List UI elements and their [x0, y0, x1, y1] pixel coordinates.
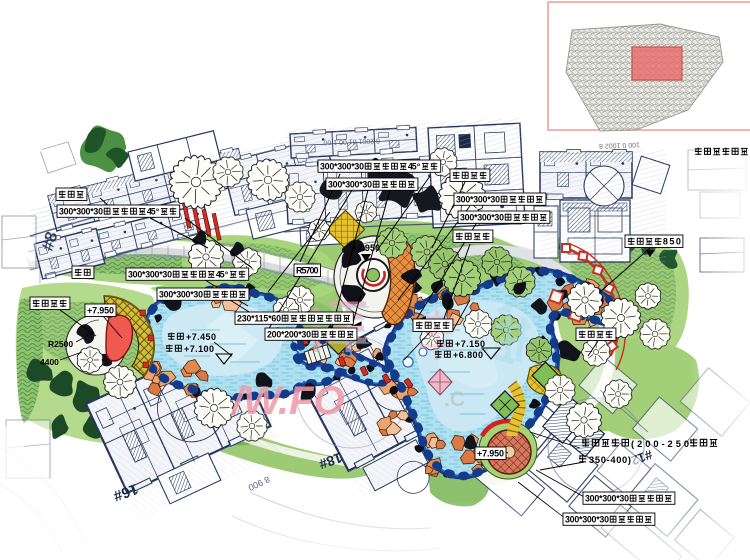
svg-text:R2500: R2500 — [48, 339, 73, 349]
svg-text:4400: 4400 — [40, 357, 59, 367]
svg-text:R5700: R5700 — [296, 266, 319, 276]
svg-text:+7.950: +7.950 — [477, 449, 504, 459]
svg-text:°: ° — [225, 269, 229, 279]
svg-text:300*300*30: 300*300*30 — [159, 289, 203, 299]
svg-text:300*300*30: 300*300*30 — [328, 179, 372, 189]
svg-text:/W.FO: /W.FO — [230, 379, 345, 423]
svg-text:+6.800: +6.800 — [453, 350, 483, 360]
svg-text:300*300*30: 300*300*30 — [320, 161, 364, 171]
svg-text:°: ° — [156, 206, 160, 216]
svg-text:300*300*30: 300*300*30 — [59, 206, 103, 216]
svg-text:.C: .C — [444, 388, 465, 411]
svg-text:200*200*30: 200*200*30 — [267, 329, 311, 339]
svg-text:45: 45 — [408, 161, 417, 171]
svg-text:300*300*30: 300*300*30 — [456, 194, 500, 204]
svg-text:300*300*30: 300*300*30 — [585, 493, 629, 503]
svg-text:+7.150: +7.150 — [455, 339, 485, 349]
svg-text:+7.100: +7.100 — [184, 344, 214, 354]
svg-text:100 0 1002 8: 100 0 1002 8 — [599, 141, 640, 149]
svg-text:850: 850 — [663, 237, 681, 247]
svg-text:°: ° — [417, 161, 421, 171]
svg-text:+7.950: +7.950 — [87, 306, 114, 316]
svg-text:300*300*30: 300*300*30 — [460, 212, 504, 222]
svg-text:230*115*60: 230*115*60 — [237, 313, 281, 323]
svg-text:45: 45 — [147, 206, 156, 216]
svg-text:300*300*30: 300*300*30 — [128, 269, 172, 279]
svg-text:300*300*30: 300*300*30 — [565, 514, 609, 524]
svg-text:+7.950: +7.950 — [352, 243, 380, 253]
svg-text:45: 45 — [216, 269, 225, 279]
svg-text:+7.450: +7.450 — [186, 332, 216, 342]
svg-text:350-400): 350-400) — [589, 455, 631, 465]
